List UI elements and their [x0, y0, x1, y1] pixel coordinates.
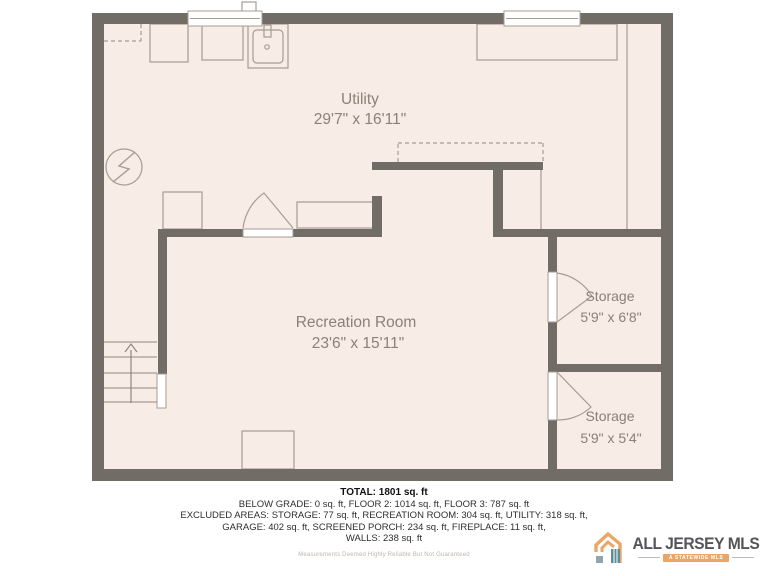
room-dims-recreation: 23'6" x 15'11": [312, 335, 404, 352]
summary-line: BELOW GRADE: 0 sq. ft, FLOOR 2: 1014 sq.…: [0, 499, 768, 511]
floor-plan: Utility 29'7" x 16'11" Recreation Room 2…: [0, 0, 768, 486]
room-dims-storage-lower: 5'9" x 5'4": [580, 430, 641, 446]
all-jersey-mls-logo: ALL JERSEY MLS A STATEWIDE MLS: [593, 530, 765, 566]
tagline-rule: [732, 557, 754, 558]
room-label-recreation: Recreation Room: [296, 314, 417, 331]
room-dims-storage-upper: 5'9" x 6'8": [580, 309, 641, 325]
logo-tagline: A STATEWIDE MLS: [663, 554, 729, 562]
room-label-utility: Utility: [341, 91, 379, 108]
logo-name: ALL JERSEY MLS: [633, 535, 760, 553]
window: [188, 11, 262, 26]
summary-total: TOTAL: 1801 sq. ft: [0, 487, 768, 499]
window: [504, 11, 580, 26]
house-logo-icon: [593, 530, 623, 566]
room-dims-utility: 29'7" x 16'11": [314, 111, 406, 128]
tagline-rule: [638, 557, 660, 558]
door-stairs: [157, 374, 166, 408]
room-label-storage-upper: Storage: [585, 288, 634, 304]
summary-line: EXCLUDED AREAS: STORAGE: 77 sq. ft, RECR…: [0, 510, 768, 522]
room-label-storage-lower: Storage: [585, 408, 634, 424]
